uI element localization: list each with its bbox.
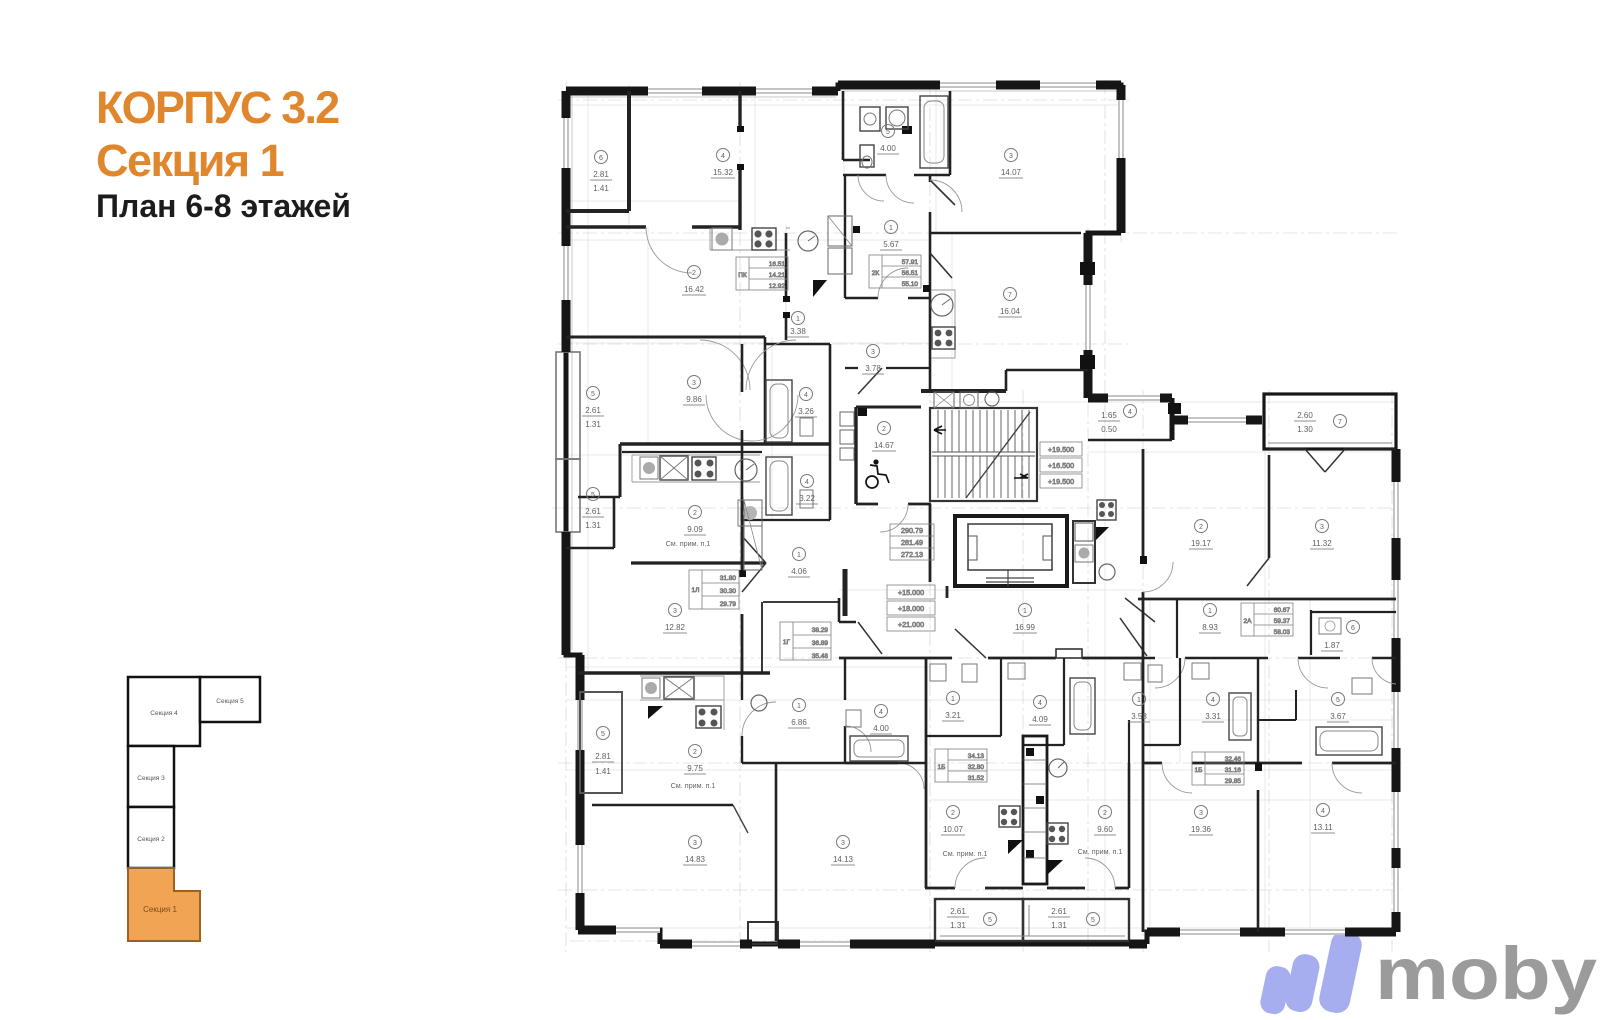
svg-text:6: 6 bbox=[1351, 625, 1355, 632]
svg-text:1.31: 1.31 bbox=[950, 921, 966, 930]
svg-text:1: 1 bbox=[951, 696, 955, 703]
svg-text:281.49: 281.49 bbox=[901, 538, 923, 547]
svg-text:2.61: 2.61 bbox=[585, 507, 601, 516]
svg-text:2.81: 2.81 bbox=[595, 752, 611, 761]
svg-text:2: 2 bbox=[951, 810, 955, 817]
svg-text:КОРПУС 3.2: КОРПУС 3.2 bbox=[96, 82, 339, 133]
svg-text:14.21: 14.21 bbox=[769, 272, 786, 279]
svg-text:34.13: 34.13 bbox=[968, 753, 985, 760]
svg-text:3: 3 bbox=[692, 380, 696, 387]
svg-text:3.78: 3.78 bbox=[865, 364, 881, 373]
svg-text:1.30: 1.30 bbox=[1297, 425, 1313, 434]
svg-text:1: 1 bbox=[797, 703, 801, 710]
svg-text:1.31: 1.31 bbox=[585, 521, 601, 530]
svg-text:31.16: 31.16 bbox=[1225, 767, 1242, 774]
svg-text:4.00: 4.00 bbox=[873, 724, 889, 733]
svg-text:См. прим. п.1: См. прим. п.1 bbox=[671, 781, 716, 790]
svg-text:3: 3 bbox=[673, 608, 677, 615]
svg-text:35.48: 35.48 bbox=[812, 653, 829, 660]
svg-text:+21.000: +21.000 bbox=[898, 620, 924, 629]
svg-text:1: 1 bbox=[796, 316, 800, 323]
svg-text:ПК: ПК bbox=[738, 272, 747, 279]
svg-text:3: 3 bbox=[841, 840, 845, 847]
svg-text:11.32: 11.32 bbox=[1312, 539, 1332, 548]
svg-text:32.80: 32.80 bbox=[968, 764, 985, 771]
svg-text:55.10: 55.10 bbox=[902, 281, 919, 288]
svg-text:9.75: 9.75 bbox=[687, 764, 703, 773]
svg-text:См. прим. п.1: См. прим. п.1 bbox=[943, 849, 988, 858]
svg-text:5: 5 bbox=[591, 391, 595, 398]
svg-text:6.86: 6.86 bbox=[791, 718, 807, 727]
svg-text:1: 1 bbox=[1208, 608, 1212, 615]
svg-text:+16.500: +16.500 bbox=[1048, 461, 1074, 470]
svg-text:30.30: 30.30 bbox=[720, 588, 737, 595]
svg-text:5: 5 bbox=[1091, 917, 1095, 924]
svg-text:4: 4 bbox=[721, 153, 725, 160]
svg-text:3: 3 bbox=[1009, 153, 1013, 160]
svg-text:59.37: 59.37 bbox=[1274, 618, 1291, 625]
svg-text:2: 2 bbox=[1199, 524, 1203, 531]
svg-text:Секция 5: Секция 5 bbox=[216, 698, 244, 705]
svg-text:1.31: 1.31 bbox=[1051, 921, 1067, 930]
svg-text:2.61: 2.61 bbox=[1051, 907, 1067, 916]
svg-text:+19.500: +19.500 bbox=[1048, 445, 1074, 454]
svg-text:Секция 1: Секция 1 bbox=[143, 905, 177, 914]
svg-text:2: 2 bbox=[882, 426, 886, 433]
svg-text:3.26: 3.26 bbox=[798, 407, 814, 416]
svg-text:3.22: 3.22 bbox=[799, 494, 815, 503]
svg-text:1Г: 1Г bbox=[783, 639, 791, 646]
svg-text:7: 7 bbox=[1338, 419, 1342, 426]
svg-text:9.86: 9.86 bbox=[686, 395, 702, 404]
svg-text:1: 1 bbox=[797, 552, 801, 559]
svg-text:2.81: 2.81 bbox=[593, 170, 609, 179]
svg-text:4.06: 4.06 bbox=[791, 567, 807, 576]
svg-text:38.29: 38.29 bbox=[812, 627, 829, 634]
svg-text:1Б: 1Б bbox=[938, 764, 946, 771]
svg-text:4.09: 4.09 bbox=[1032, 715, 1048, 724]
svg-text:Секция 4: Секция 4 bbox=[150, 710, 178, 717]
svg-text:3.31: 3.31 bbox=[1205, 712, 1221, 721]
svg-text:2.60: 2.60 bbox=[1297, 411, 1313, 420]
svg-text:4: 4 bbox=[1128, 409, 1132, 416]
svg-text:16.99: 16.99 bbox=[1015, 623, 1036, 632]
svg-text:290.79: 290.79 bbox=[901, 526, 923, 535]
svg-text:См. прим. п.1: См. прим. п.1 bbox=[666, 539, 711, 548]
svg-text:Секция 2: Секция 2 bbox=[137, 836, 165, 843]
svg-text:12.92: 12.92 bbox=[769, 283, 786, 290]
svg-text:0.50: 0.50 bbox=[1101, 425, 1117, 434]
svg-text:32.46: 32.46 bbox=[1225, 756, 1242, 763]
svg-text:См. прим. п.1: См. прим. п.1 bbox=[1078, 847, 1123, 856]
svg-text:3.38: 3.38 bbox=[790, 327, 806, 336]
svg-text:moby: moby bbox=[1375, 932, 1597, 1015]
svg-text:1Б: 1Б bbox=[1195, 767, 1203, 774]
svg-text:36.89: 36.89 bbox=[812, 640, 829, 647]
svg-text:58.03: 58.03 bbox=[1274, 629, 1291, 636]
svg-text:3: 3 bbox=[693, 840, 697, 847]
svg-text:2К: 2К bbox=[872, 270, 880, 277]
svg-text:29.79: 29.79 bbox=[720, 601, 737, 608]
svg-text:3.21: 3.21 bbox=[945, 711, 961, 720]
svg-text:5: 5 bbox=[1336, 697, 1340, 704]
svg-text:1.31: 1.31 bbox=[585, 420, 601, 429]
svg-text:2: 2 bbox=[692, 270, 696, 277]
svg-text:15.32: 15.32 bbox=[713, 168, 734, 177]
svg-text:60.67: 60.67 bbox=[1274, 607, 1291, 614]
svg-text:Секция 1: Секция 1 bbox=[96, 135, 284, 186]
svg-text:19.17: 19.17 bbox=[1191, 539, 1212, 548]
svg-text:3: 3 bbox=[1320, 524, 1324, 531]
svg-text:9.60: 9.60 bbox=[1097, 825, 1113, 834]
svg-text:+18.000: +18.000 bbox=[898, 604, 924, 613]
svg-text:+15.000: +15.000 bbox=[898, 588, 924, 597]
svg-text:1Л: 1Л bbox=[692, 587, 700, 594]
svg-text:2: 2 bbox=[1103, 810, 1107, 817]
svg-text:31.52: 31.52 bbox=[968, 775, 985, 782]
svg-text:3.58: 3.58 bbox=[1131, 712, 1147, 721]
svg-text:7: 7 bbox=[1008, 292, 1012, 299]
svg-text:4.00: 4.00 bbox=[880, 144, 896, 153]
svg-text:1.87: 1.87 bbox=[1324, 641, 1340, 650]
svg-text:272.13: 272.13 bbox=[901, 550, 923, 559]
svg-text:3.67: 3.67 bbox=[1330, 712, 1346, 721]
svg-text:5: 5 bbox=[886, 129, 890, 136]
svg-text:12.82: 12.82 bbox=[665, 623, 686, 632]
svg-text:5: 5 bbox=[601, 731, 605, 738]
svg-text:2: 2 bbox=[693, 510, 697, 517]
svg-text:9.09: 9.09 bbox=[687, 525, 703, 534]
svg-text:2А: 2А bbox=[1244, 618, 1253, 625]
svg-text:1.41: 1.41 bbox=[593, 184, 609, 193]
svg-text:3: 3 bbox=[871, 349, 875, 356]
svg-text:4: 4 bbox=[804, 392, 808, 399]
svg-text:14.07: 14.07 bbox=[1001, 168, 1022, 177]
svg-text:5.67: 5.67 bbox=[883, 240, 899, 249]
svg-text:14.13: 14.13 bbox=[833, 855, 854, 864]
svg-text:2.61: 2.61 bbox=[950, 907, 966, 916]
svg-text:13.11: 13.11 bbox=[1313, 823, 1333, 832]
svg-text:19.36: 19.36 bbox=[1191, 825, 1212, 834]
svg-text:1: 1 bbox=[1137, 697, 1141, 704]
svg-text:5: 5 bbox=[988, 917, 992, 924]
svg-text:2: 2 bbox=[693, 749, 697, 756]
svg-text:8.93: 8.93 bbox=[1202, 623, 1218, 632]
svg-text:План 6-8 этажей: План 6-8 этажей bbox=[96, 188, 351, 224]
svg-text:4: 4 bbox=[805, 479, 809, 486]
svg-text:10.07: 10.07 bbox=[943, 825, 964, 834]
svg-text:2.61: 2.61 bbox=[585, 406, 601, 415]
svg-text:31.80: 31.80 bbox=[720, 575, 737, 582]
svg-text:3: 3 bbox=[1199, 810, 1203, 817]
svg-text:Секция 3: Секция 3 bbox=[137, 775, 165, 782]
svg-text:57.91: 57.91 bbox=[902, 259, 919, 266]
svg-text:1.41: 1.41 bbox=[595, 767, 611, 776]
svg-text:+19.500: +19.500 bbox=[1048, 477, 1074, 486]
svg-text:56.51: 56.51 bbox=[902, 270, 919, 277]
svg-text:4: 4 bbox=[1321, 808, 1325, 815]
svg-text:16.42: 16.42 bbox=[684, 285, 705, 294]
svg-text:16.04: 16.04 bbox=[1000, 307, 1021, 316]
svg-text:16.51: 16.51 bbox=[769, 261, 786, 268]
svg-text:4: 4 bbox=[879, 709, 883, 716]
svg-text:14.83: 14.83 bbox=[685, 855, 706, 864]
svg-text:1: 1 bbox=[889, 225, 893, 232]
svg-text:5: 5 bbox=[591, 492, 595, 499]
svg-text:4: 4 bbox=[1038, 700, 1042, 707]
svg-text:1: 1 bbox=[1023, 608, 1027, 615]
svg-text:4: 4 bbox=[1211, 697, 1215, 704]
svg-text:1.65: 1.65 bbox=[1101, 411, 1117, 420]
svg-text:29.85: 29.85 bbox=[1225, 778, 1242, 785]
svg-text:14.67: 14.67 bbox=[874, 441, 895, 450]
svg-text:6: 6 bbox=[599, 155, 603, 162]
